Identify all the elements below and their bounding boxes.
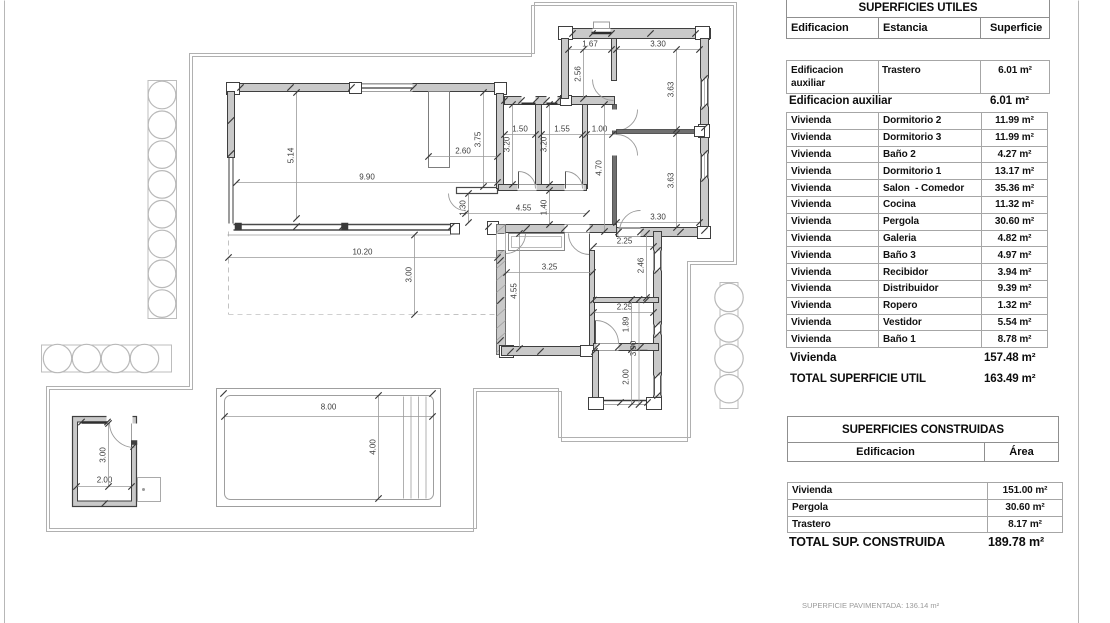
svg-text:4.70: 4.70: [595, 160, 604, 176]
svg-text:2.25: 2.25: [617, 303, 633, 312]
svg-text:9.90: 9.90: [359, 173, 375, 182]
svg-text:2.00: 2.00: [622, 369, 631, 385]
svg-text:3.30: 3.30: [650, 40, 666, 49]
svg-text:1.67: 1.67: [582, 40, 598, 49]
svg-text:3.00: 3.00: [405, 266, 414, 282]
svg-text:3.63: 3.63: [667, 172, 676, 188]
svg-text:4.55: 4.55: [510, 283, 519, 299]
svg-text:1.00: 1.00: [592, 125, 608, 134]
svg-text:2.46: 2.46: [637, 257, 646, 273]
svg-text:3.75: 3.75: [474, 131, 483, 147]
svg-text:1.89: 1.89: [622, 316, 631, 332]
svg-text:3.25: 3.25: [542, 263, 558, 272]
svg-text:10.20: 10.20: [352, 248, 373, 257]
svg-text:2.60: 2.60: [455, 147, 471, 156]
svg-text:4.55: 4.55: [516, 204, 532, 213]
svg-text:2.56: 2.56: [574, 66, 583, 82]
svg-text:3.20: 3.20: [503, 136, 512, 152]
svg-text:2.25: 2.25: [617, 237, 633, 246]
svg-text:3.30: 3.30: [650, 213, 666, 222]
svg-text:1.40: 1.40: [540, 199, 549, 215]
svg-text:1.50: 1.50: [512, 125, 528, 134]
svg-text:4.00: 4.00: [369, 439, 378, 455]
svg-text:3.00: 3.00: [99, 447, 108, 463]
svg-text:3.20: 3.20: [540, 136, 549, 152]
svg-text:2.00: 2.00: [97, 476, 113, 485]
svg-text:5.14: 5.14: [287, 147, 296, 163]
svg-text:3.63: 3.63: [667, 81, 676, 97]
svg-text:1.55: 1.55: [554, 125, 570, 134]
svg-text:8.00: 8.00: [321, 403, 337, 412]
svg-text:1.30: 1.30: [459, 200, 468, 216]
